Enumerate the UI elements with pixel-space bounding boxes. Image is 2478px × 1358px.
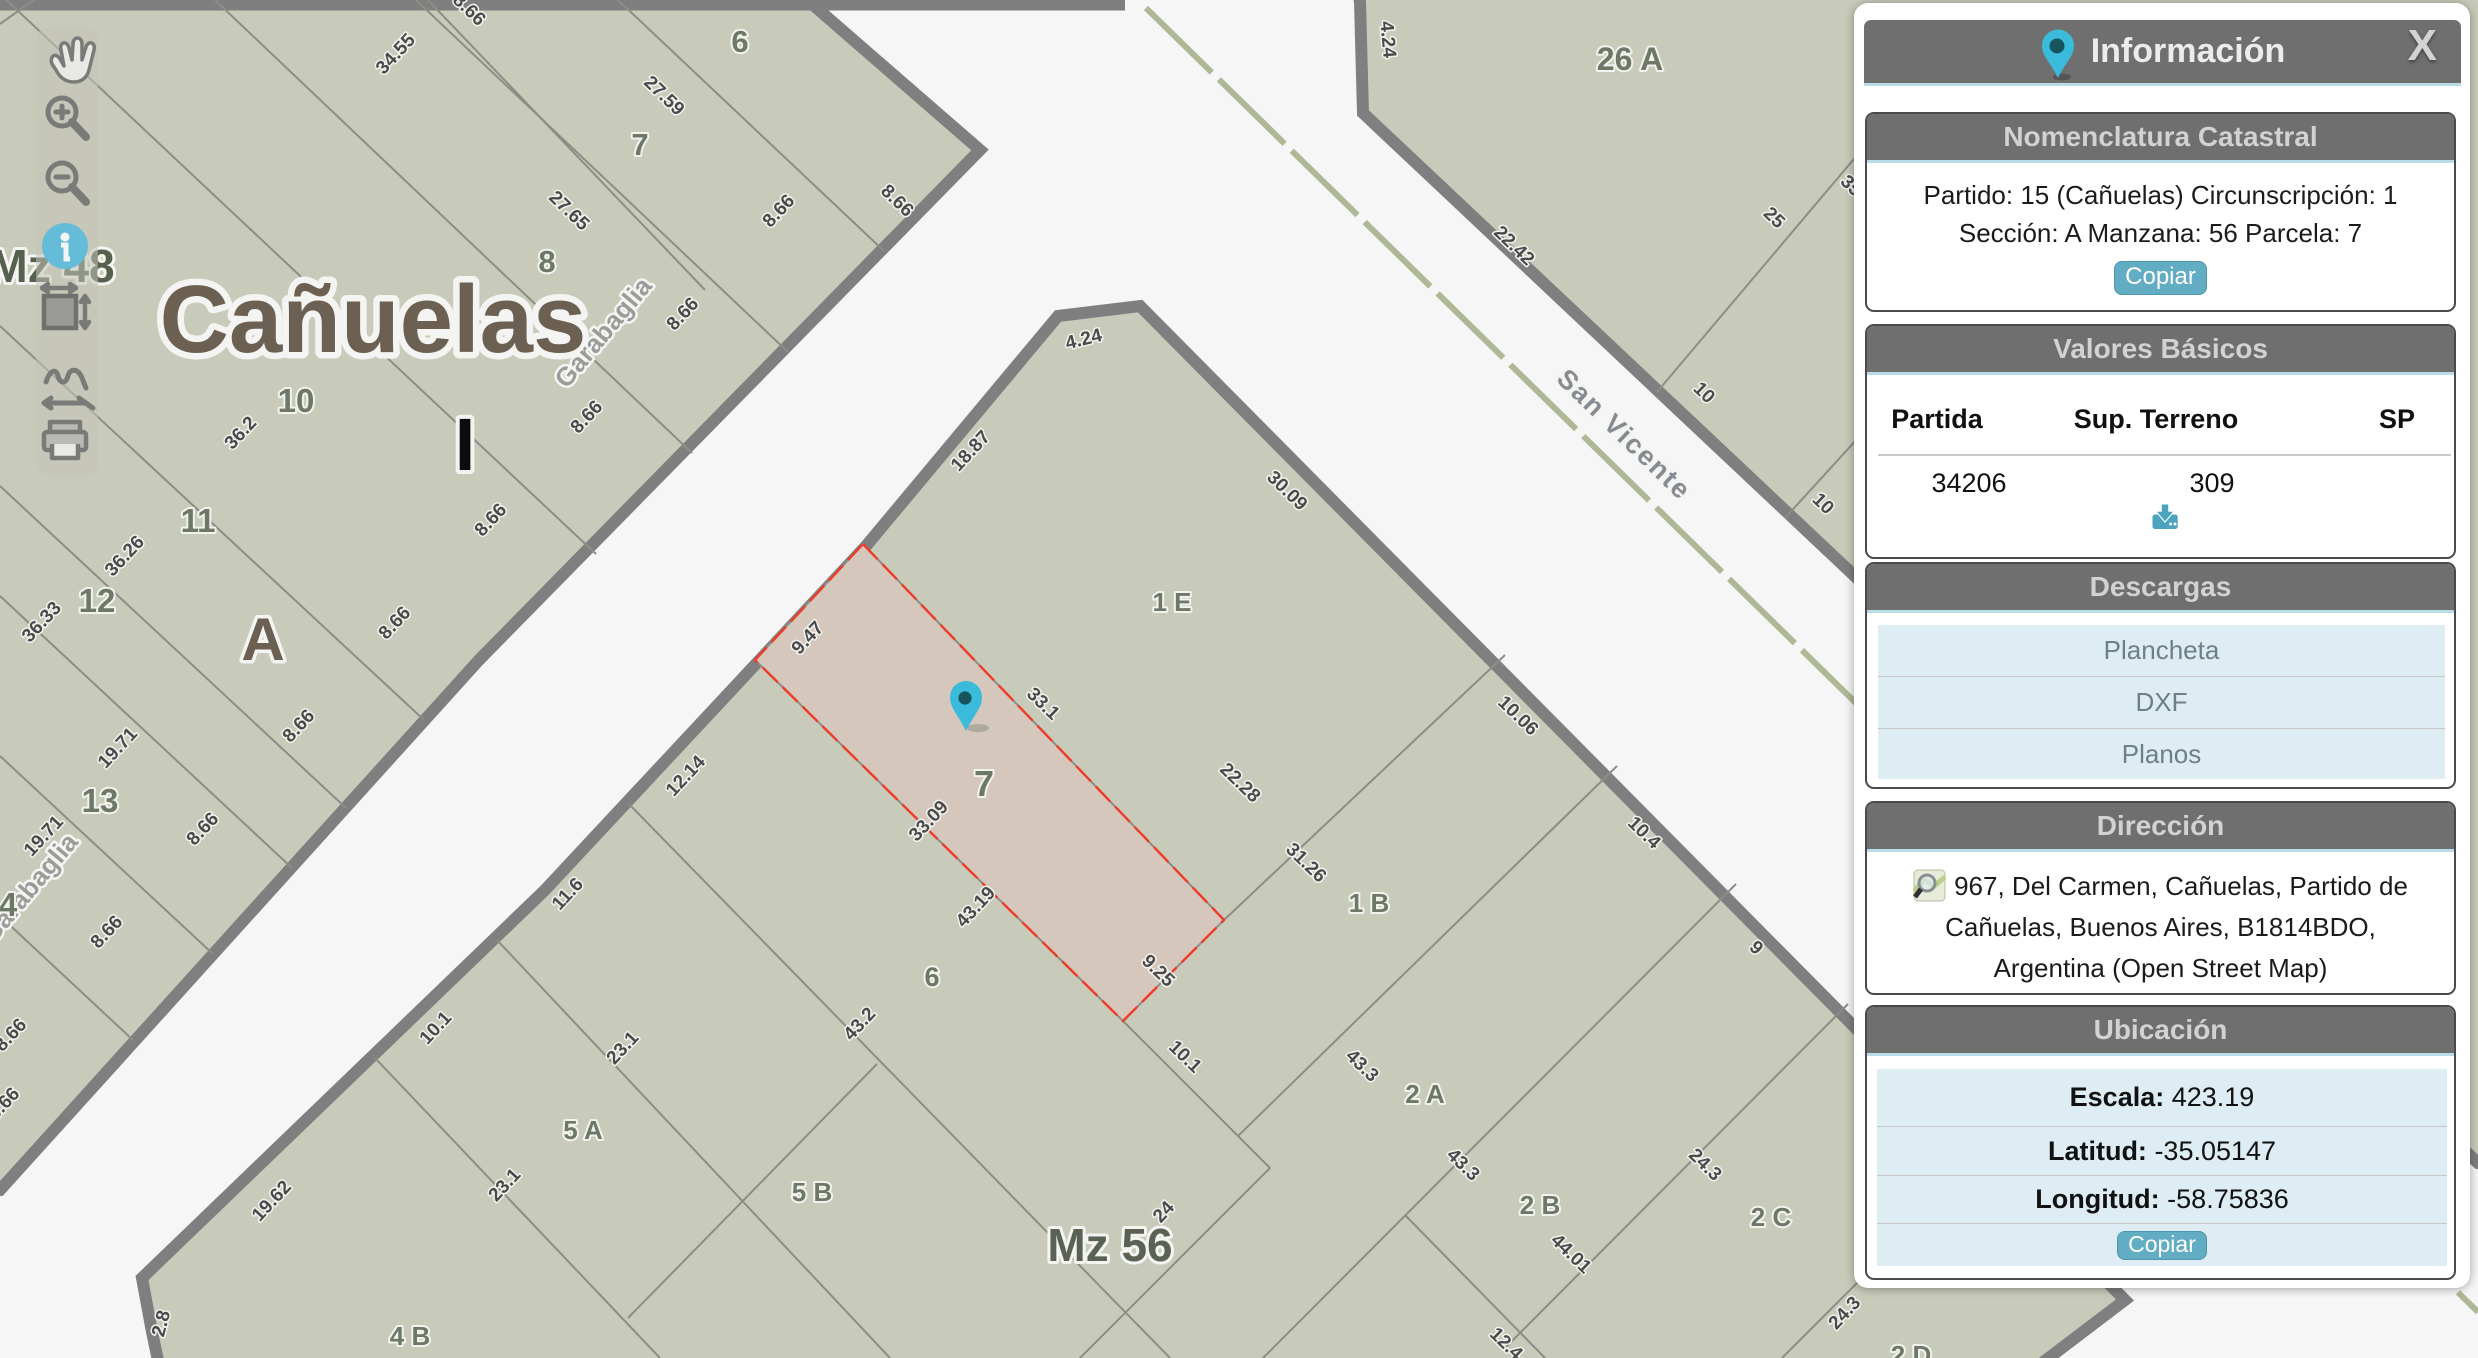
svg-text:6: 6	[731, 24, 748, 59]
svg-text:Cañuelas: Cañuelas	[160, 266, 587, 373]
svg-text:4 B: 4 B	[390, 1321, 430, 1351]
svg-text:5 A: 5 A	[563, 1115, 603, 1145]
svg-text:12: 12	[79, 582, 116, 619]
svg-text:2 B: 2 B	[1520, 1190, 1560, 1220]
svg-text:6: 6	[924, 962, 939, 992]
svg-text:26 A: 26 A	[1597, 41, 1663, 77]
svg-text:2 A: 2 A	[1405, 1079, 1445, 1109]
svg-text:I: I	[455, 403, 476, 486]
svg-text:A: A	[241, 606, 284, 673]
svg-text:8: 8	[538, 244, 555, 279]
svg-text:4.24: 4.24	[1375, 20, 1399, 59]
svg-text:11: 11	[181, 502, 216, 539]
svg-text:Mz 56: Mz 56	[1047, 1219, 1172, 1271]
svg-text:2 C: 2 C	[1751, 1202, 1792, 1232]
svg-text:5 B: 5 B	[792, 1177, 832, 1207]
svg-text:2 D: 2 D	[1891, 1340, 1931, 1358]
svg-text:1 B: 1 B	[1349, 888, 1389, 918]
svg-text:7: 7	[974, 763, 994, 804]
svg-text:10: 10	[278, 382, 315, 419]
svg-text:4: 4	[0, 886, 18, 923]
svg-text:1 E: 1 E	[1152, 587, 1191, 617]
svg-text:13: 13	[82, 782, 119, 819]
svg-text:7: 7	[631, 127, 648, 162]
